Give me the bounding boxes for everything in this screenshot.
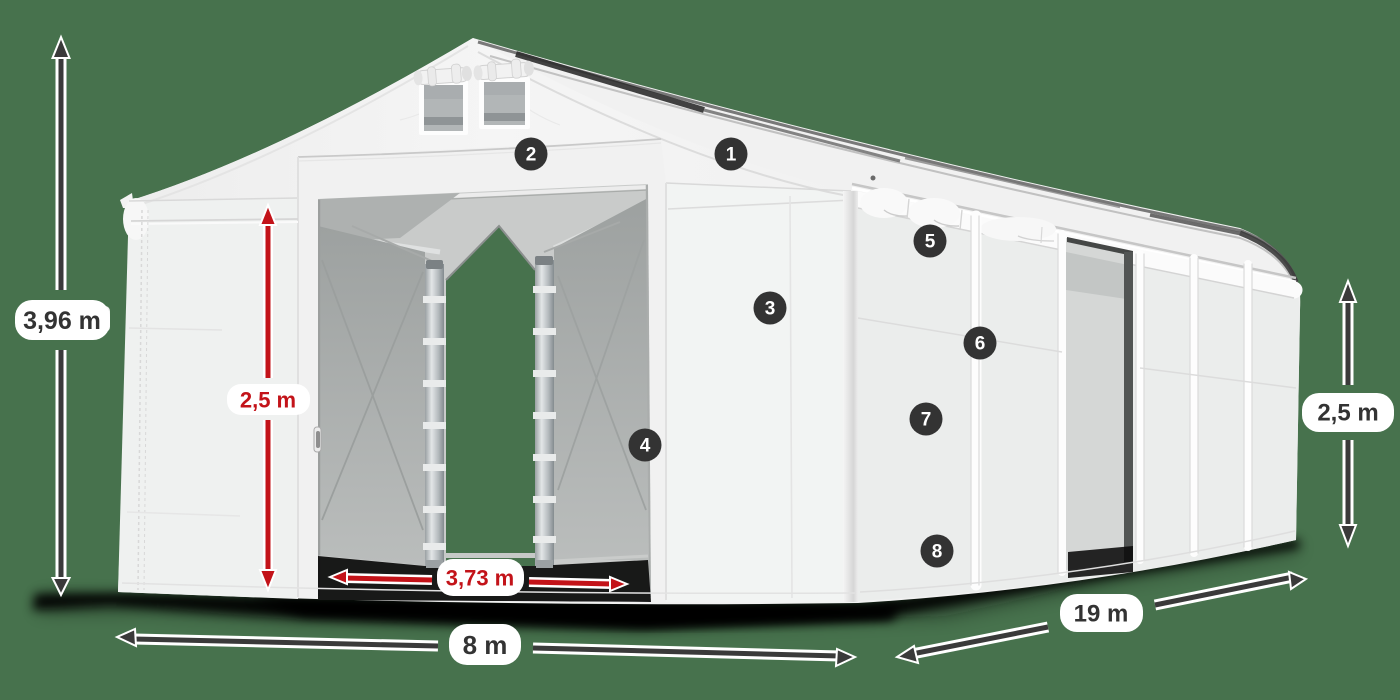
svg-text:3,73 m: 3,73 m	[446, 566, 515, 591]
svg-text:3: 3	[765, 299, 776, 320]
svg-text:6: 6	[975, 334, 986, 355]
svg-text:5: 5	[925, 232, 936, 253]
svg-text:8 m: 8 m	[463, 630, 508, 660]
svg-text:3,96 m: 3,96 m	[23, 307, 101, 335]
svg-text:4: 4	[640, 436, 651, 457]
svg-text:2,5 m: 2,5 m	[240, 388, 296, 413]
svg-text:2: 2	[526, 145, 537, 166]
svg-text:19 m: 19 m	[1074, 601, 1129, 628]
svg-text:7: 7	[921, 410, 932, 431]
svg-text:8: 8	[932, 542, 943, 563]
svg-text:1: 1	[726, 145, 737, 166]
svg-text:2,5 m: 2,5 m	[1317, 400, 1378, 427]
